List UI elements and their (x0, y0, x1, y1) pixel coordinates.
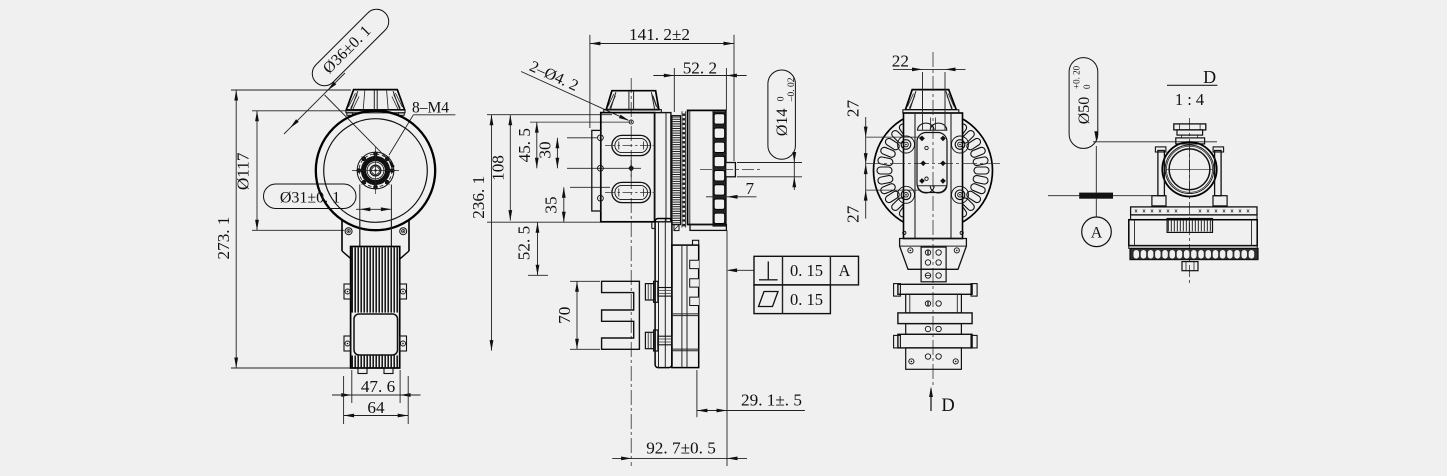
svg-text:+0. 20: +0. 20 (1072, 65, 1082, 89)
svg-text:A: A (1091, 225, 1103, 242)
svg-text:47. 6: 47. 6 (361, 377, 396, 396)
svg-text:30: 30 (536, 141, 555, 158)
svg-text:29. 1±. 5: 29. 1±. 5 (741, 391, 802, 410)
svg-text:273. 1: 273. 1 (214, 217, 233, 260)
svg-text:141. 2±2: 141. 2±2 (629, 25, 690, 44)
svg-text:8–M4: 8–M4 (412, 100, 449, 117)
svg-text:35: 35 (542, 196, 561, 213)
svg-text:64: 64 (367, 398, 385, 417)
svg-text:236. 1: 236. 1 (469, 176, 488, 219)
svg-text:7: 7 (746, 179, 755, 198)
svg-text:0: 0 (776, 96, 786, 101)
svg-text:–0. 02: –0. 02 (787, 77, 797, 102)
svg-text:D: D (1203, 67, 1216, 87)
svg-text:Ø14: Ø14 (774, 109, 791, 137)
svg-text:52. 5: 52. 5 (515, 226, 534, 260)
svg-text:92. 7±0. 5: 92. 7±0. 5 (646, 439, 716, 458)
svg-text:Ø50: Ø50 (1076, 97, 1093, 125)
svg-text:108: 108 (489, 155, 508, 181)
svg-text:70: 70 (555, 307, 574, 324)
svg-text:27: 27 (844, 205, 863, 223)
svg-text:22: 22 (892, 52, 909, 71)
svg-text:0. 15: 0. 15 (790, 290, 823, 309)
svg-text:0. 15: 0. 15 (790, 261, 823, 280)
svg-text:27: 27 (844, 100, 863, 118)
svg-text:52. 2: 52. 2 (683, 59, 717, 78)
svg-text:Ø117: Ø117 (234, 152, 253, 190)
svg-text:Ø31±0. 1: Ø31±0. 1 (280, 189, 340, 206)
svg-text:0: 0 (1082, 84, 1092, 89)
svg-text:1 : 4: 1 : 4 (1175, 90, 1204, 109)
svg-text:D: D (941, 396, 954, 416)
svg-text:A: A (839, 261, 851, 280)
svg-text:45. 5: 45. 5 (515, 128, 534, 162)
